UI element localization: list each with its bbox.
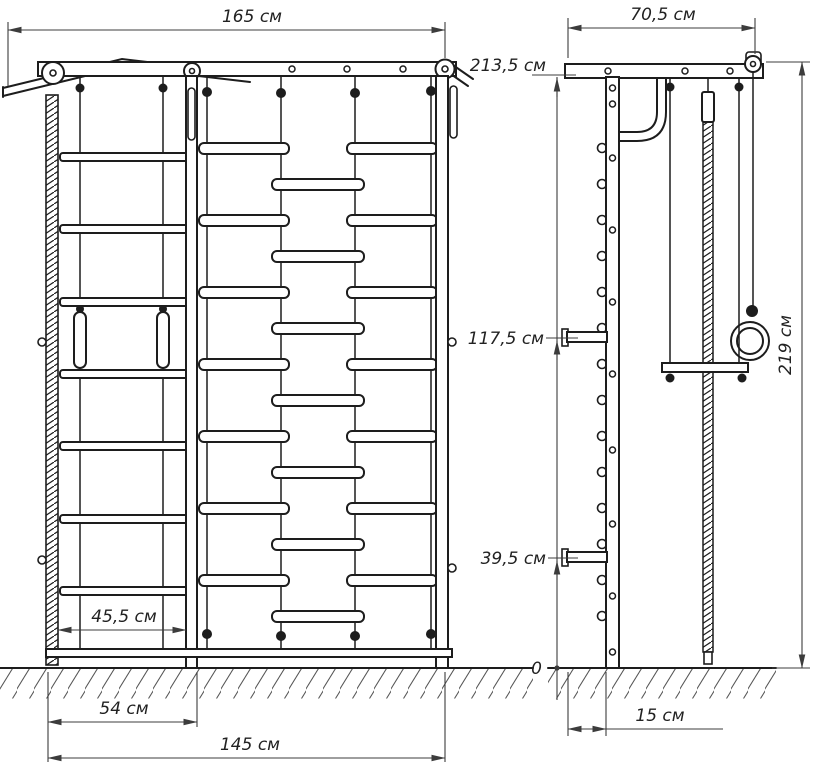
wall-anchor [38, 338, 46, 346]
dim-label-ladder-width: 54 см [99, 699, 148, 719]
outer-rope [46, 95, 58, 665]
dim-inner-width: 45,5 см [58, 607, 186, 630]
height-scale: 213,5 см 117,5 см 39,5 см 0 [468, 56, 578, 700]
wall-anchor [448, 564, 456, 572]
gymnastic-ring [731, 72, 769, 360]
dim-label-height-lower: 39,5 см [481, 549, 547, 569]
center-post [186, 76, 197, 668]
rope-ladder-section [38, 76, 188, 665]
top-beam [38, 62, 456, 76]
zero-level-dot [554, 665, 559, 670]
dim-label-height-middle: 117,5 см [468, 329, 544, 349]
dim-total-height: 219 см [766, 62, 810, 668]
ladder-rungs [60, 153, 188, 595]
post-strap [450, 86, 457, 138]
dim-label-depth: 15 см [635, 706, 684, 726]
dim-label-base-width: 145 см [220, 735, 280, 755]
technical-drawing-page: 165 см 70,5 см 45,5 см 54 см 145 см [0, 0, 815, 768]
side-view [562, 52, 769, 668]
curved-handle [619, 78, 666, 141]
dim-label-ground-zero: 0 [531, 659, 542, 679]
dim-label-front-width: 165 см [222, 7, 282, 27]
bottom-bar [46, 649, 452, 657]
wall-anchor [38, 556, 46, 564]
front-view [3, 59, 473, 668]
dim-label-side-width: 70,5 см [630, 5, 696, 25]
dim-label-total-height: 219 см [776, 315, 796, 375]
ground [0, 668, 776, 699]
wall-anchor [448, 338, 456, 346]
wall-bars-drawing: 165 см 70,5 см 45,5 см 54 см 145 см [0, 0, 815, 768]
ground-hatch-side [548, 669, 776, 699]
post-strap [188, 88, 195, 140]
beam-end-pulley [745, 52, 761, 72]
dim-label-inner-width: 45,5 см [91, 607, 157, 627]
net-slats [199, 143, 437, 622]
dim-label-height-upper: 213,5 см [470, 56, 546, 76]
ground-hatch-front [0, 669, 533, 699]
hanging-grips [74, 305, 169, 368]
dim-side-width: 70,5 см [568, 5, 755, 58]
right-post [436, 76, 448, 668]
